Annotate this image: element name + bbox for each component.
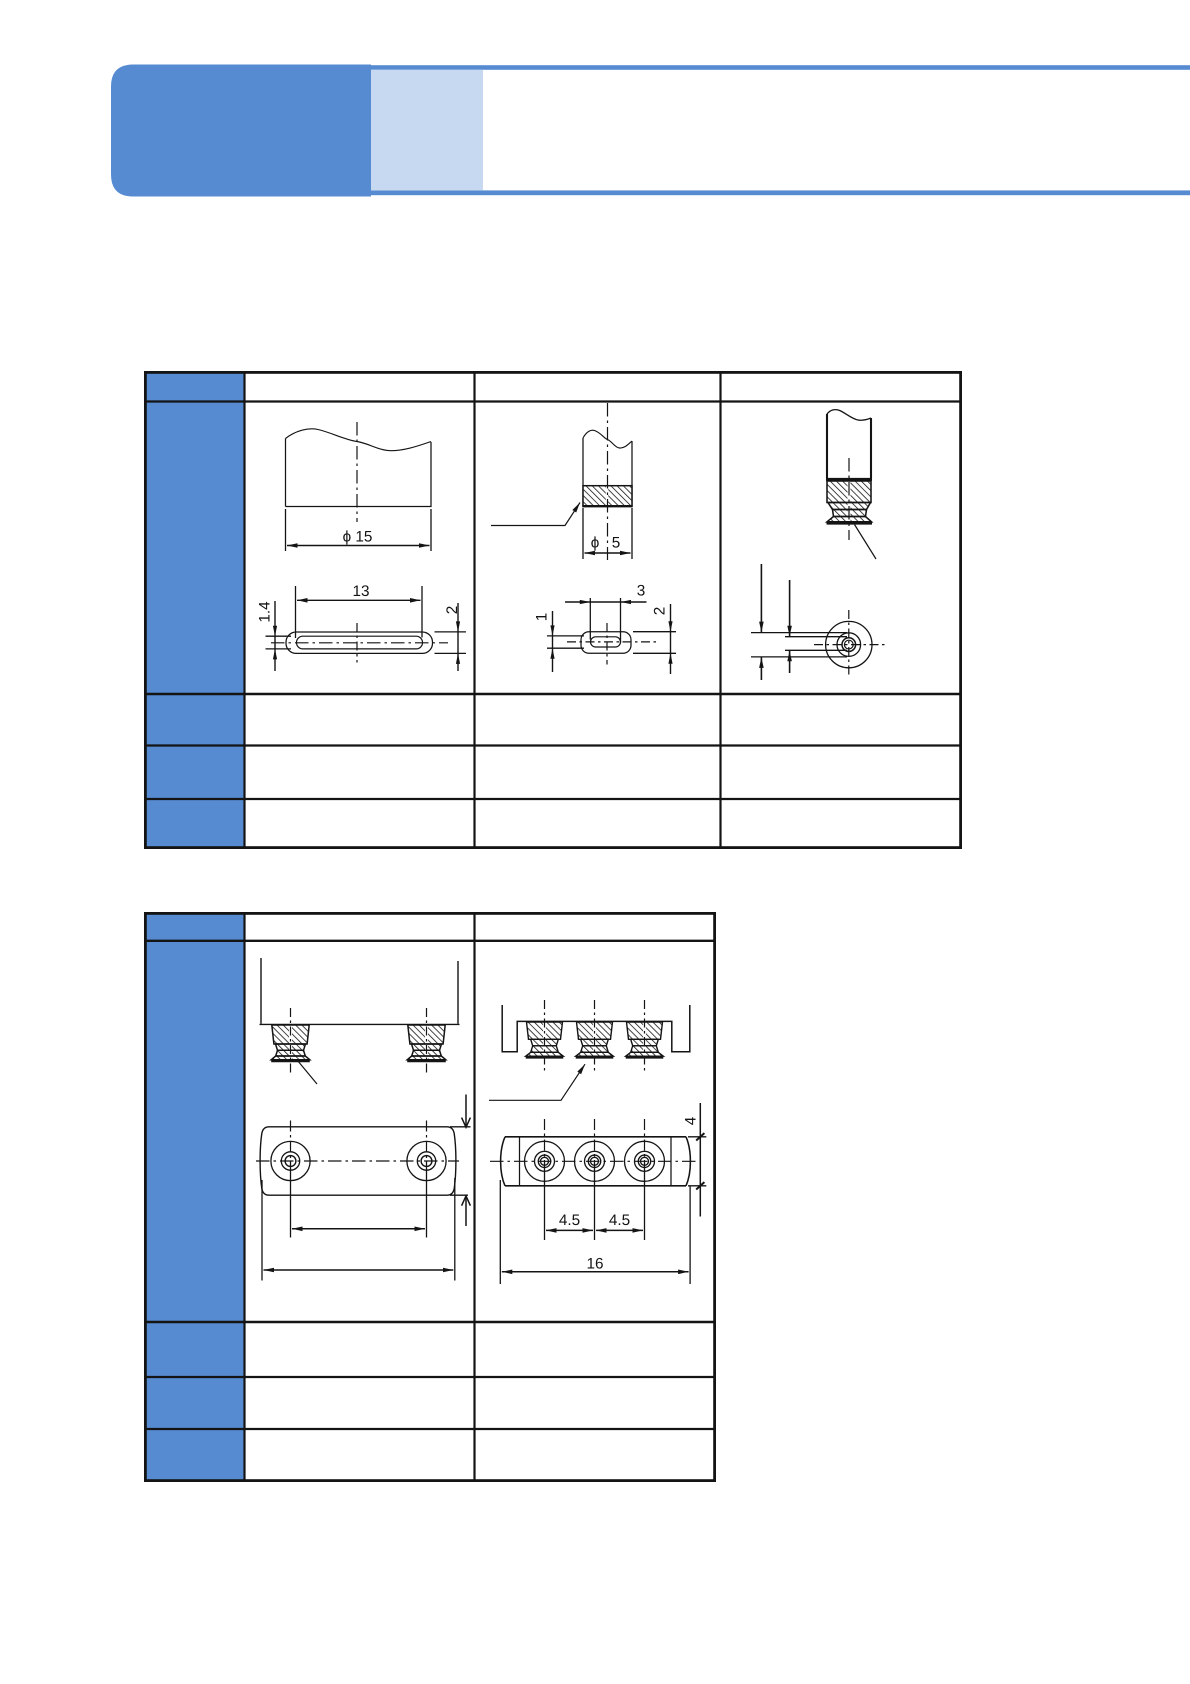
svg-text:13: 13 [352,583,369,600]
svg-text:2: 2 [444,606,461,615]
svg-text:1: 1 [534,613,551,622]
svg-text:5: 5 [612,535,621,552]
svg-text:ϕ: ϕ [591,535,600,552]
svg-text:16: 16 [586,1256,603,1273]
svg-text:4.5: 4.5 [609,1212,630,1229]
svg-text:2: 2 [652,607,669,616]
svg-text:ϕ 15: ϕ 15 [343,529,373,546]
svg-text:3: 3 [637,583,646,600]
svg-text:4: 4 [683,1116,700,1125]
svg-text:1.4: 1.4 [257,601,274,623]
svg-text:4.5: 4.5 [559,1212,580,1229]
